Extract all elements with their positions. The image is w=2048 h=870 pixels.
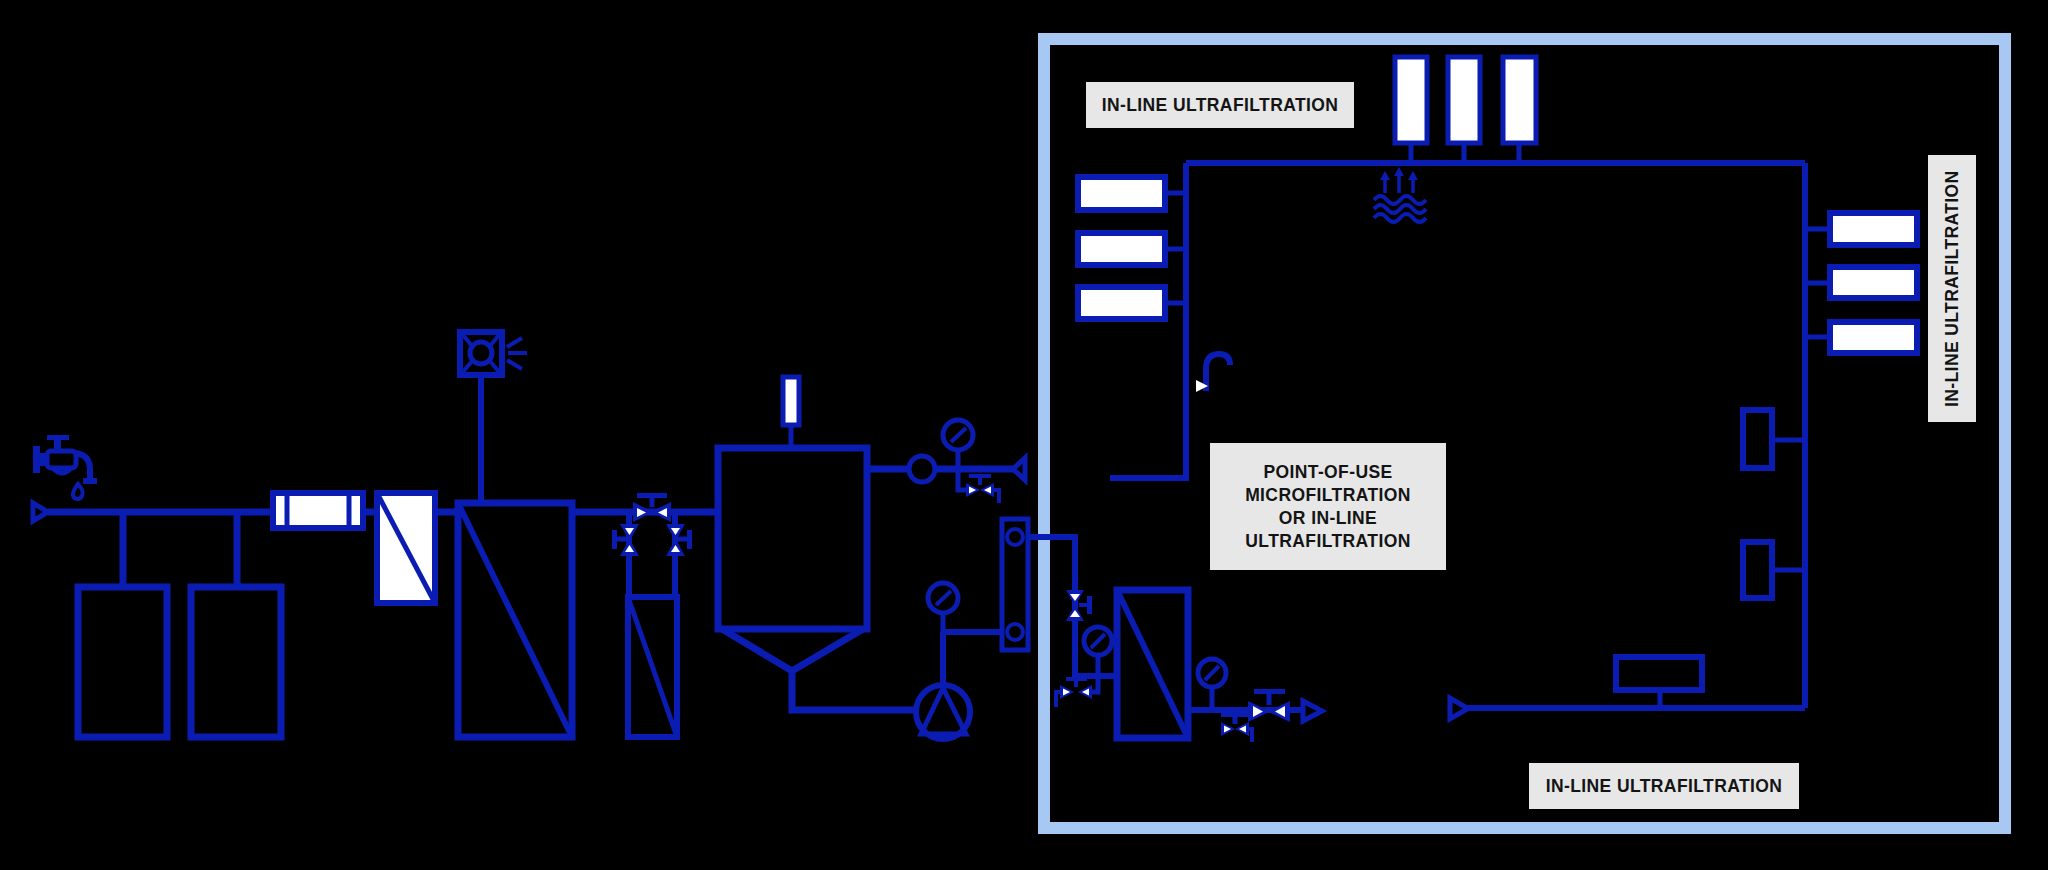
process-flow-diagram: IN-LINE ULTRAFILTRATION POINT-OF-USE MIC… <box>0 0 2048 870</box>
rotameter-icon <box>1002 519 1028 650</box>
gate-valve-icon <box>666 524 692 556</box>
cartridge-filter <box>273 493 363 528</box>
break-tank <box>718 377 916 710</box>
pump-discharge-line <box>943 632 1002 685</box>
pou-outlet <box>1830 213 1917 245</box>
label-inline-ultrafiltration-bottom: IN-LINE ULTRAFILTRATION <box>1529 763 1799 809</box>
pou-filter <box>1117 590 1188 738</box>
pressure-gauge-icon <box>1198 659 1226 710</box>
pou-port-bank-left <box>1078 177 1186 319</box>
takeoff-port <box>1743 542 1772 598</box>
label-text-line3: OR IN-LINE <box>1279 507 1377 530</box>
loop-flow-arrow-icon <box>1450 698 1468 719</box>
label-text-line1: POINT-OF-USE <box>1263 461 1392 484</box>
loop-takeoff-points <box>1743 410 1805 598</box>
gate-valve-icon <box>1066 590 1092 621</box>
filter-module-icon <box>1448 57 1480 143</box>
distribution-loop-piping <box>1110 163 1805 708</box>
loop-return-sensor <box>1616 657 1702 708</box>
flow-indicator-icon <box>909 456 935 482</box>
filter-module-icon <box>1395 57 1427 143</box>
label-text: IN-LINE ULTRAFILTRATION <box>1546 776 1783 797</box>
label-inline-ultrafiltration-right: IN-LINE ULTRAFILTRATION <box>1928 155 1976 422</box>
pressure-gauge-icon <box>943 420 973 469</box>
label-text: IN-LINE ULTRAFILTRATION <box>1942 170 1963 407</box>
label-text: IN-LINE ULTRAFILTRATION <box>1102 95 1339 116</box>
diagram-canvas <box>0 0 2048 870</box>
pou-outlet <box>1078 233 1165 265</box>
tank-vent <box>783 377 799 425</box>
uv-lamp-icon <box>460 332 527 503</box>
polishing-column <box>628 597 677 737</box>
pressure-gauge-icon <box>1084 627 1112 676</box>
water-drop-icon <box>73 484 83 499</box>
gate-valve-icon <box>633 493 671 522</box>
outlet-arrow-icon <box>1013 458 1025 480</box>
outlet-flow-arrow-icon <box>1303 701 1322 721</box>
filter-module-icon <box>1503 57 1536 143</box>
tap-outlet-icon <box>1196 354 1230 392</box>
label-point-of-use: POINT-OF-USE MICROFILTRATION OR IN-LINE … <box>1210 443 1446 570</box>
media-filter <box>458 503 572 737</box>
gate-valve-icon <box>1248 689 1290 722</box>
label-inline-ultrafiltration-top: IN-LINE ULTRAFILTRATION <box>1086 82 1354 128</box>
pou-outlet <box>1078 177 1165 210</box>
gate-valve-icon <box>612 524 639 556</box>
drain-valve-icon <box>958 469 999 503</box>
storage-tank-1 <box>78 587 167 737</box>
uf-module-bank <box>1395 57 1536 163</box>
storage-tank-2 <box>191 587 281 737</box>
tank-outlet-line <box>867 420 1025 503</box>
pou-outlet <box>1078 287 1165 319</box>
drain-valve-icon <box>1221 710 1252 742</box>
takeoff-port <box>1743 410 1772 468</box>
inlet-flow-arrow-icon <box>33 503 48 521</box>
pou-outlet <box>1830 267 1917 298</box>
label-text-line4: ULTRAFILTRATION <box>1245 530 1410 553</box>
pou-outlet <box>1830 322 1917 353</box>
drain-valve-icon <box>1056 676 1098 707</box>
pressure-gauge-icon <box>928 583 958 632</box>
membrane-filter-small <box>377 493 435 603</box>
evaporation-icon <box>1374 167 1426 222</box>
pou-port-bank-right <box>1805 213 1917 353</box>
label-text-line2: MICROFILTRATION <box>1245 484 1411 507</box>
pump-icon <box>916 685 970 739</box>
water-tap-icon <box>33 435 97 499</box>
